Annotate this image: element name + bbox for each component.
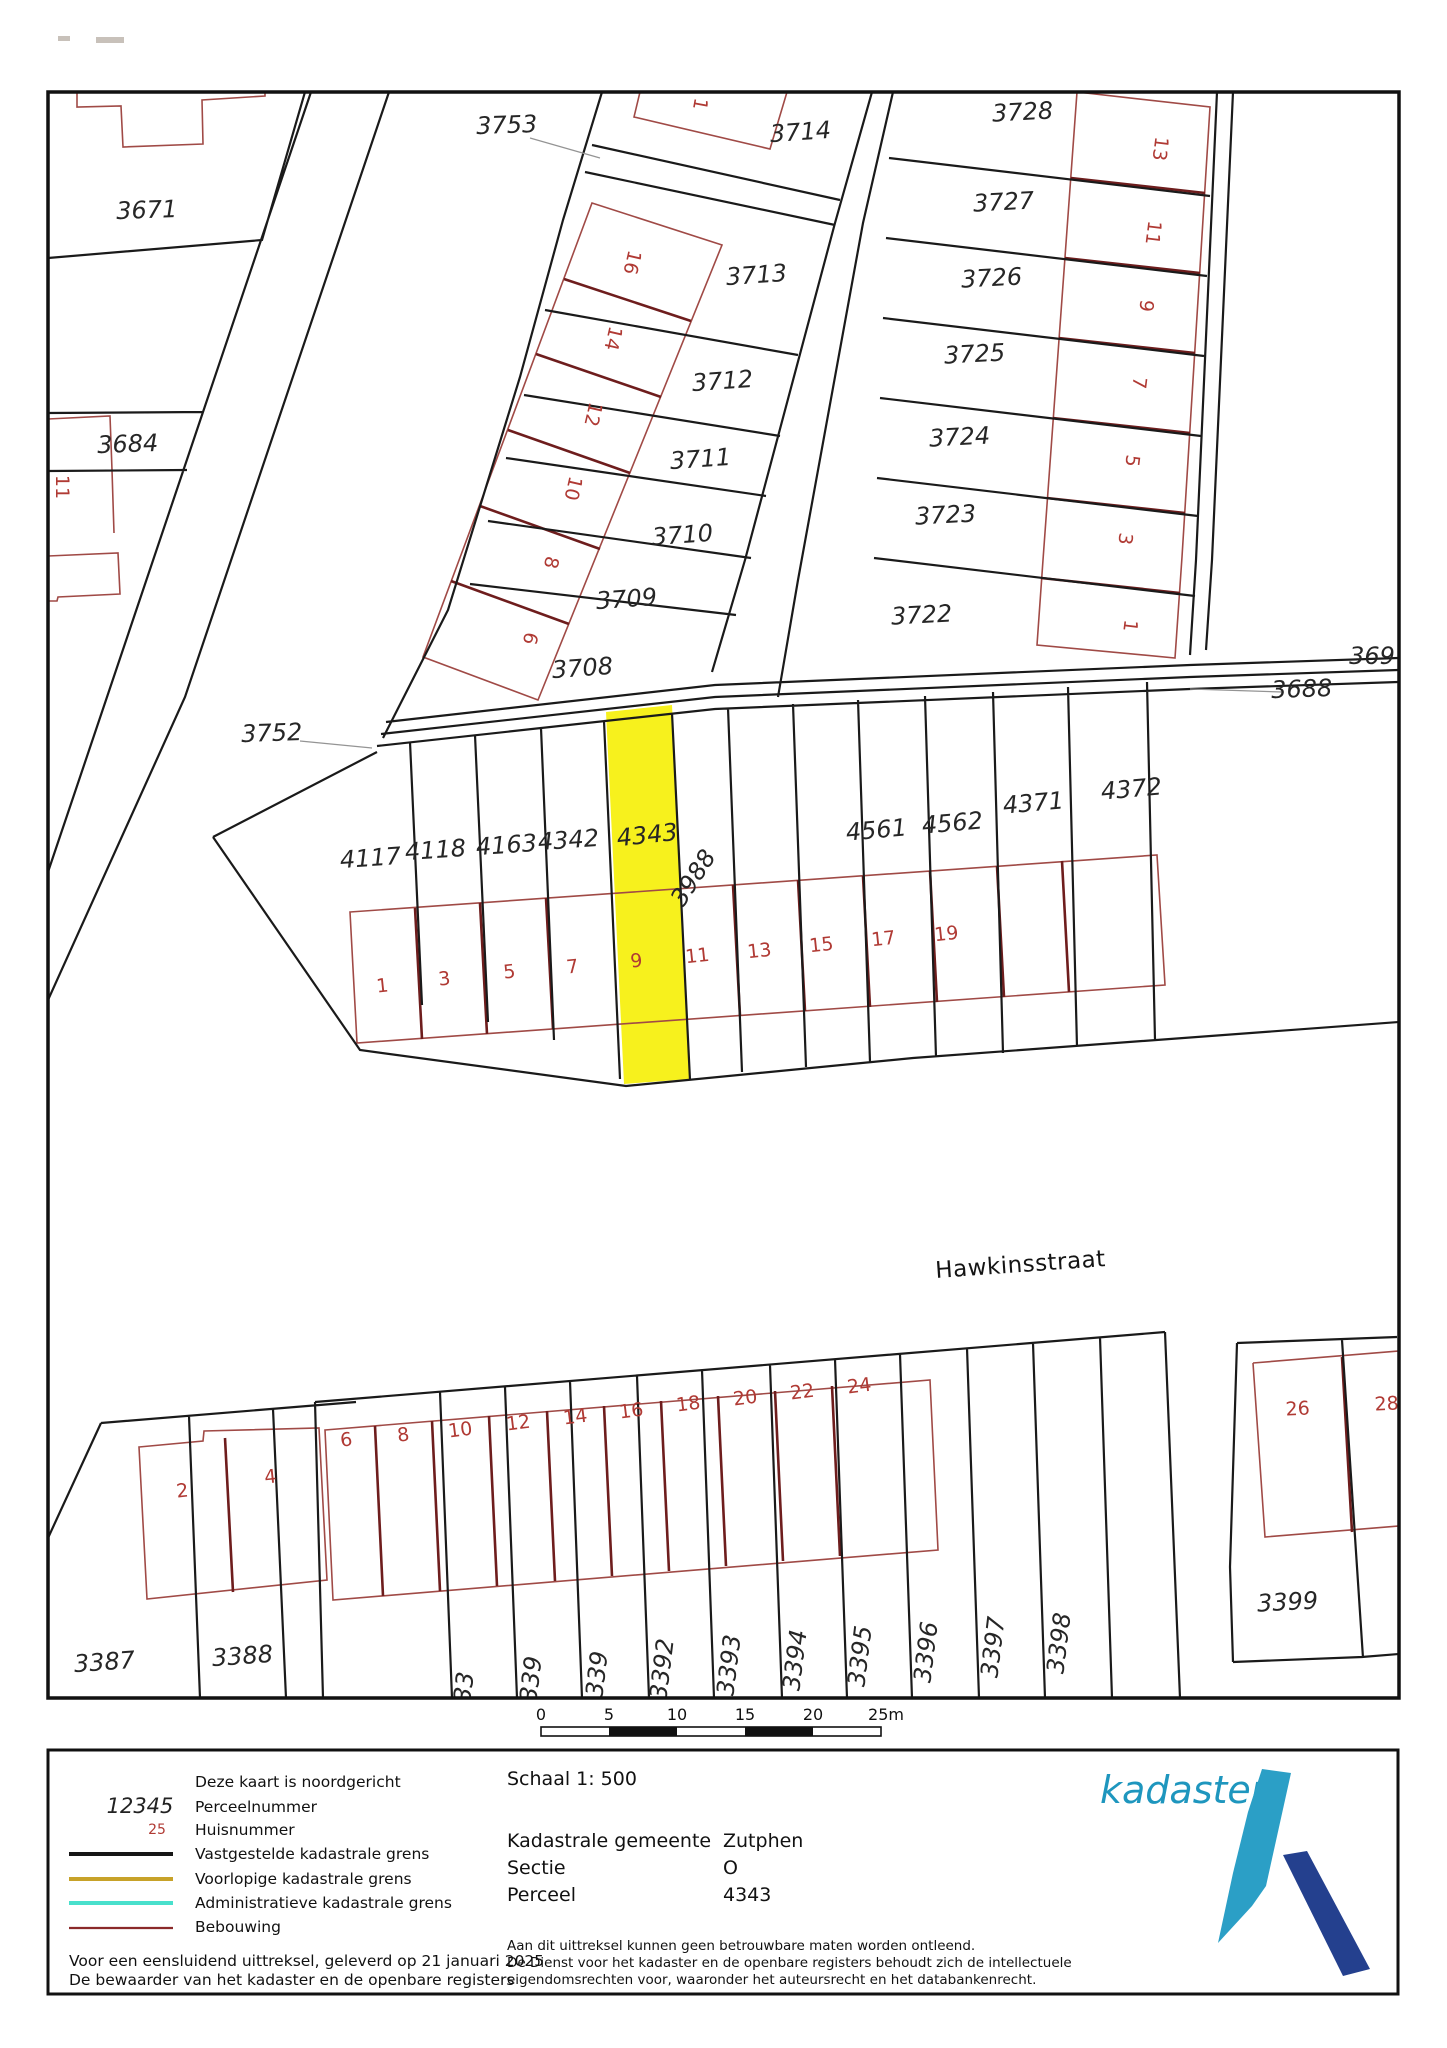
field-value-gemeente: Zutphen [723, 1830, 803, 1852]
house-number-label: 11 [51, 475, 73, 499]
legend-sample-house-number: 25 [148, 1822, 166, 1838]
house-number-label: 24 [846, 1374, 873, 1399]
parcel-number-label: 4371 [1002, 786, 1065, 819]
field-value-sectie: O [723, 1857, 738, 1879]
parcel-number-label: 3394 [777, 1628, 812, 1692]
street-name-label: Hawkinsstraat [934, 1246, 1106, 1284]
house-number-label: 15 [808, 933, 834, 957]
parcel-number-label: 4117 [339, 842, 403, 874]
parcel-number-label: 4562 [921, 806, 984, 839]
parcel-number-label: 4118 [404, 834, 467, 866]
house-number-label: 7 [565, 955, 579, 978]
field-value-perceel: 4343 [723, 1884, 771, 1906]
house-number-label: 6 [518, 630, 542, 647]
parcel-number-label: 369 [1349, 642, 1395, 670]
parcel-number-label: 3724 [928, 421, 990, 452]
house-number-label: 3 [1113, 531, 1136, 546]
house-number-label: 3 [437, 967, 451, 990]
label-leader-lines [300, 138, 1282, 748]
house-number-label: 14 [562, 1405, 589, 1430]
kadaster-logo-text: kadaster [1100, 1768, 1269, 1812]
parcel-number-label: 3728 [991, 96, 1053, 127]
house-number-label: 9 [1134, 298, 1157, 313]
parcel-number-label: 3395 [842, 1624, 877, 1688]
parcel-number-label: 339 [580, 1650, 613, 1699]
parcel-number-label: 3710 [651, 519, 714, 551]
legend-item-label: Huisnummer [195, 1821, 295, 1839]
house-number-label: 18 [675, 1392, 702, 1417]
house-number-label: 13 [1148, 135, 1173, 162]
house-number-label: 7 [1127, 375, 1150, 390]
scale-bar: 0 5 10 15 20 25m [536, 1705, 904, 1736]
scale-tick-label: 15 [735, 1705, 755, 1724]
house-number-label: 12 [505, 1411, 532, 1436]
house-number-label: 28 [1374, 1392, 1399, 1415]
house-number-label: 17 [870, 927, 896, 951]
parcel-number-label: 3396 [908, 1620, 943, 1684]
scale-bar-segment [609, 1727, 677, 1736]
parcel-number-label: 3723 [914, 499, 976, 530]
legend-item-label: Deze kaart is noordgericht [195, 1773, 401, 1791]
parcel-number-label: 3397 [975, 1614, 1010, 1679]
field-label-gemeente: Kadastrale gemeente [507, 1830, 711, 1852]
parcel-number-label: 3708 [551, 652, 614, 684]
parcel-number-label: 3712 [691, 365, 754, 397]
scale-text: Schaal 1: 500 [507, 1768, 637, 1790]
scale-bar-outline [541, 1727, 881, 1736]
parcel-number-label: 339 [514, 1655, 547, 1704]
scale-tick-label: 10 [667, 1705, 687, 1724]
legend-item-label: Administratieve kadastrale grens [195, 1894, 452, 1912]
parcel-number-label: 4342 [537, 824, 600, 856]
house-number-label: 22 [789, 1380, 816, 1405]
legend-sample-parcel-number: 12345 [107, 1794, 174, 1818]
parcel-number-label: 3752 [241, 718, 303, 748]
house-number-label: 2 [175, 1479, 189, 1502]
parcel-number-label: 3722 [890, 599, 952, 630]
parcel-number-label: 3393 [711, 1633, 746, 1697]
house-number-label: 16 [618, 1399, 645, 1424]
parcel-number-label: 3726 [960, 262, 1022, 293]
kadaster-logo: kadaster [1100, 1768, 1370, 1976]
kadaster-logo-mark-dark [1283, 1851, 1370, 1976]
parcel-number-label: 3398 [1041, 1611, 1076, 1675]
parcel-number-label: 3714 [769, 116, 832, 148]
house-number-label: 20 [732, 1386, 759, 1411]
parcel-number-label: 3392 [644, 1637, 679, 1701]
house-number-label: 13 [746, 939, 772, 963]
house-number-label: 1 [375, 974, 389, 997]
parcel-number-label: 3388 [211, 1640, 274, 1672]
parcel-number-label: 4372 [1100, 772, 1163, 805]
house-number-label: 14 [599, 324, 626, 353]
parcel-number-label: 3725 [943, 338, 1005, 369]
field-label-perceel: Perceel [507, 1884, 576, 1906]
house-number-label: 16 [618, 248, 645, 277]
parcel-number-label: 3688 [1271, 674, 1333, 704]
scale-tick-label: 5 [604, 1705, 614, 1724]
legend-footer-line1: Voor een eensluidend uittreksel, gelever… [69, 1952, 544, 1970]
legend-box: 12345 25 Deze kaart is noordgericht Perc… [48, 1750, 1398, 1994]
house-number-label: 1 [688, 96, 712, 112]
house-number-label: 19 [933, 922, 959, 946]
house-number-label: 8 [539, 554, 563, 571]
legend-item-label: Voorlopige kadastrale grens [195, 1870, 412, 1888]
legend-item-label: Bebouwing [195, 1918, 281, 1936]
parcel-number-label: 3753 [476, 110, 538, 140]
house-number-label: 5 [502, 960, 516, 983]
scale-bar-segment [745, 1727, 813, 1736]
house-number-label: 10 [447, 1418, 474, 1443]
parcel-number-label: 3709 [595, 583, 658, 615]
house-number-label: 26 [1285, 1397, 1310, 1420]
scale-tick-label: 20 [803, 1705, 823, 1724]
parcel-number-label: 3727 [972, 186, 1035, 217]
scale-tick-label: 25m [868, 1705, 904, 1724]
legend-item-label: Perceelnummer [195, 1798, 318, 1816]
legend-item-label: Vastgestelde kadastrale grens [195, 1845, 429, 1863]
building-outlines [48, 92, 1399, 1600]
scan-artifact [58, 36, 124, 43]
cadastral-map-svg: 3671368437533752371437133712371137103709… [0, 0, 1447, 2048]
house-number-label: 1 [1118, 618, 1141, 633]
house-number-label: 8 [396, 1423, 411, 1446]
house-number-label: 6 [339, 1428, 354, 1451]
house-number-label: 4 [263, 1465, 277, 1488]
field-label-sectie: Sectie [507, 1857, 566, 1879]
disclaimer-line3: eigendomsrechten voor, waaronder het aut… [507, 1972, 1036, 1988]
house-number-label: 11 [1141, 219, 1166, 246]
parcel-number-label: 3671 [116, 195, 178, 225]
parcel-number-label: 4163 [475, 829, 538, 861]
parcel-number-label: 3713 [725, 259, 788, 291]
kadaster-extract-page: 3671368437533752371437133712371137103709… [0, 0, 1447, 2048]
disclaimer-line1: Aan dit uittreksel kunnen geen betrouwba… [507, 1938, 975, 1954]
house-number-label: 11 [684, 944, 710, 968]
house-number-label: 9 [629, 949, 643, 972]
disclaimer-line2: De Dienst voor het kadaster en de openba… [507, 1955, 1072, 1971]
parcel-number-label: 3684 [97, 429, 159, 459]
map-canvas: 3671368437533752371437133712371137103709… [48, 92, 1399, 1704]
parcel-number-label: 4561 [845, 813, 908, 846]
parcel-number-label: 3387 [73, 1646, 137, 1678]
parcel-number-label: 3711 [669, 443, 732, 475]
legend-footer-line2: De bewaarder van het kadaster en de open… [69, 1971, 515, 1989]
parcel-number-label: 3399 [1256, 1586, 1318, 1617]
house-number-label: 5 [1120, 453, 1143, 468]
house-number-label: 10 [559, 474, 586, 503]
scale-tick-label: 0 [536, 1705, 546, 1724]
